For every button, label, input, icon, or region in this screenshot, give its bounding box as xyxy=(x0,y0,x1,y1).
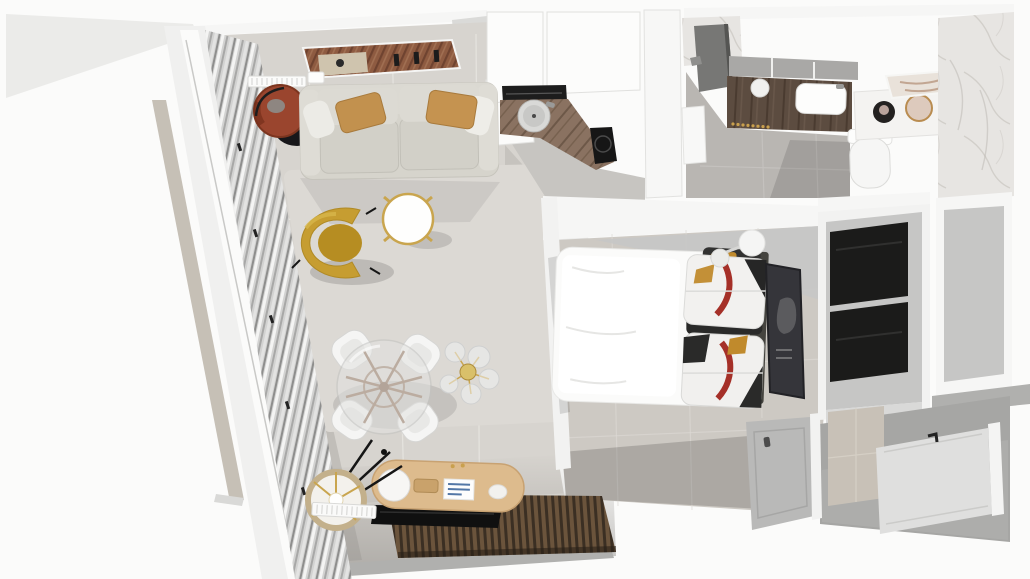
round-dish[interactable] xyxy=(751,79,769,97)
dining-table[interactable] xyxy=(337,340,431,434)
fabric-sofa[interactable] xyxy=(299,82,499,179)
oval-wood-sideboard[interactable] xyxy=(371,459,525,512)
kitchen-partition-wall xyxy=(644,10,682,198)
hallway xyxy=(818,192,1030,542)
artwork-mark xyxy=(336,59,344,67)
artwork-slot xyxy=(434,50,440,62)
bedroom-door[interactable] xyxy=(746,413,822,530)
mirror-shelf-band xyxy=(729,56,858,80)
double-bed[interactable] xyxy=(551,242,768,409)
floorplan-canvas xyxy=(0,0,1030,579)
sink-drain xyxy=(532,114,536,118)
chair-seat-gap xyxy=(267,99,285,113)
sphere-table-lamp[interactable] xyxy=(377,469,410,502)
wood-tray[interactable] xyxy=(414,479,438,493)
marble-wall xyxy=(938,12,1014,204)
radiator-valve-box xyxy=(308,72,324,83)
artwork-slot xyxy=(394,54,400,66)
bathroom xyxy=(682,4,1014,204)
duvet-highlight xyxy=(558,255,681,397)
baseboard-radiator[interactable] xyxy=(312,502,377,518)
armchair-cushion xyxy=(318,224,362,262)
right-wall-panel xyxy=(944,206,1004,382)
lamp-globe-small xyxy=(711,249,729,267)
wall-hung-toilet[interactable] xyxy=(849,137,891,188)
amber-pillow xyxy=(425,90,478,130)
gold-rim-tray[interactable] xyxy=(906,95,932,121)
lamp-hub xyxy=(381,449,387,455)
wardrobe-dark-panel[interactable] xyxy=(830,302,908,382)
kitchen-upper-cabinet[interactable] xyxy=(547,12,640,94)
lamp-globe xyxy=(739,230,765,256)
decor-shell[interactable] xyxy=(489,484,507,499)
door-jamb xyxy=(810,413,822,520)
bathroom-door-frame[interactable] xyxy=(682,106,706,164)
artwork-slot xyxy=(414,52,420,64)
candle-top xyxy=(879,105,889,115)
apartment-3d-floorplan xyxy=(0,0,1030,579)
leaning-dark-artwork[interactable] xyxy=(766,264,804,398)
wardrobe-dark-panel[interactable] xyxy=(830,222,908,306)
vanity-faucet[interactable] xyxy=(836,84,844,89)
graphic-pillow xyxy=(681,332,765,408)
pendant-hub xyxy=(460,364,476,380)
glass-top xyxy=(337,340,431,434)
